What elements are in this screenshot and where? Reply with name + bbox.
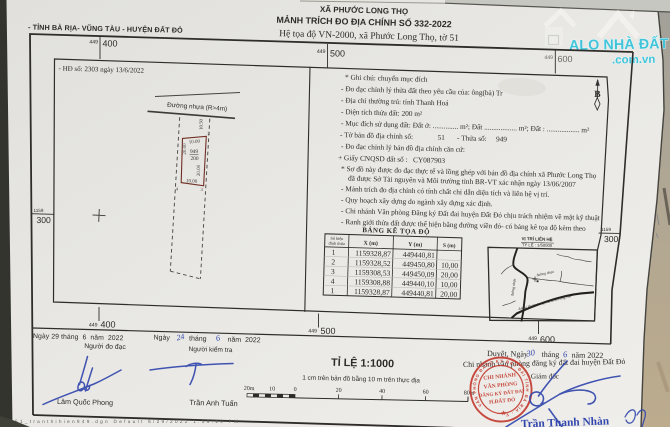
- svg-text:3: 3: [331, 267, 335, 276]
- svg-text:1159308,88: 1159308,88: [354, 277, 390, 287]
- svg-text:949: 949: [496, 134, 508, 143]
- svg-text:Ngày: Ngày: [153, 334, 170, 342]
- svg-text:Trần Anh Tuấn: Trần Anh Tuấn: [189, 398, 237, 408]
- svg-text:10.00: 10.00: [186, 178, 198, 185]
- svg-text:300: 300: [37, 215, 52, 225]
- svg-text:0: 0: [294, 387, 297, 393]
- svg-text:Lâm Quốc Phong: Lâm Quốc Phong: [57, 397, 113, 407]
- svg-text:449: 449: [317, 49, 326, 55]
- svg-text:Trần Thanh Nhàn: Trần Thanh Nhàn: [521, 415, 610, 427]
- svg-text:4: 4: [331, 277, 335, 286]
- svg-text:10.00: 10.00: [189, 138, 201, 145]
- svg-text:449: 449: [89, 323, 98, 329]
- svg-text:200: 200: [190, 156, 198, 162]
- svg-text:449440,81: 449440,81: [403, 250, 436, 260]
- svg-text:449440,10: 449440,10: [402, 279, 435, 289]
- svg-text:949: 949: [190, 149, 198, 155]
- svg-text:S (m): S (m): [443, 243, 456, 249]
- svg-text:1159308,53: 1159308,53: [354, 268, 390, 278]
- svg-text:20: 20: [336, 388, 342, 394]
- svg-text:20,00: 20,00: [440, 289, 458, 299]
- svg-text:449: 449: [308, 329, 317, 335]
- svg-text:10: 10: [269, 386, 275, 392]
- svg-text:.com.vn: .com.vn: [612, 54, 656, 67]
- svg-text:10,00: 10,00: [440, 280, 458, 290]
- svg-text:51_tranthihien949.dgn Default: 51_tranthihien949.dgn Default 6/29/2022 …: [15, 419, 240, 424]
- svg-text:449: 449: [528, 336, 537, 342]
- svg-text:400: 400: [103, 39, 118, 49]
- svg-text:tháng: tháng: [189, 335, 207, 343]
- svg-text:1159328,52: 1159328,52: [355, 258, 391, 268]
- svg-text:300: 300: [604, 234, 619, 244]
- svg-text:20,00: 20,00: [441, 270, 459, 280]
- svg-text:60: 60: [423, 390, 429, 396]
- svg-text:40: 40: [379, 389, 385, 395]
- svg-text:2: 2: [331, 257, 335, 266]
- svg-text:Người kiểm tra: Người kiểm tra: [188, 345, 232, 354]
- svg-text:1159: 1159: [601, 227, 611, 232]
- svg-text:1: 1: [330, 286, 334, 295]
- svg-text:1159328,87: 1159328,87: [355, 249, 391, 259]
- svg-text:449450,80: 449450,80: [402, 260, 435, 270]
- svg-text:X (m): X (m): [363, 240, 378, 247]
- svg-text:400: 400: [101, 320, 116, 330]
- svg-text:VỊ TRÍ LIÊN HỆ: VỊ TRÍ LIÊN HỆ: [521, 236, 552, 242]
- svg-text:10,00: 10,00: [441, 261, 459, 271]
- svg-text:đỉnh thửa: đỉnh thửa: [329, 241, 346, 246]
- svg-text:20.00: 20.00: [182, 143, 188, 155]
- svg-text:20m: 20m: [244, 386, 255, 392]
- svg-text:449: 449: [544, 55, 553, 61]
- svg-text:năm 2022: năm 2022: [227, 336, 260, 345]
- svg-text:Người đo đạc: Người đo đạc: [84, 343, 126, 351]
- svg-text:600: 600: [540, 335, 555, 345]
- svg-text:TỶ LỆ : 1/50000: TỶ LỆ : 1/50000: [522, 242, 553, 248]
- svg-text:10.50: 10.50: [199, 119, 205, 130]
- svg-text:TỈ LỆ 1:1000: TỈ LỆ 1:1000: [331, 356, 394, 371]
- svg-text:449: 449: [89, 40, 98, 46]
- svg-text:20.00: 20.00: [196, 164, 202, 176]
- svg-text:449450,09: 449450,09: [402, 269, 435, 279]
- svg-text:1: 1: [331, 248, 335, 257]
- svg-text:- Thửa số:: - Thửa số:: [457, 133, 487, 143]
- svg-text:449440,81: 449440,81: [401, 288, 434, 298]
- svg-text:500: 500: [330, 49, 345, 59]
- svg-text:1159328,87: 1159328,87: [354, 287, 390, 297]
- svg-text:500: 500: [321, 326, 336, 336]
- svg-text:600: 600: [558, 54, 573, 64]
- svg-text:1159: 1159: [34, 208, 44, 213]
- svg-text:Y (m): Y (m): [408, 241, 422, 248]
- svg-text:51: 51: [437, 133, 445, 142]
